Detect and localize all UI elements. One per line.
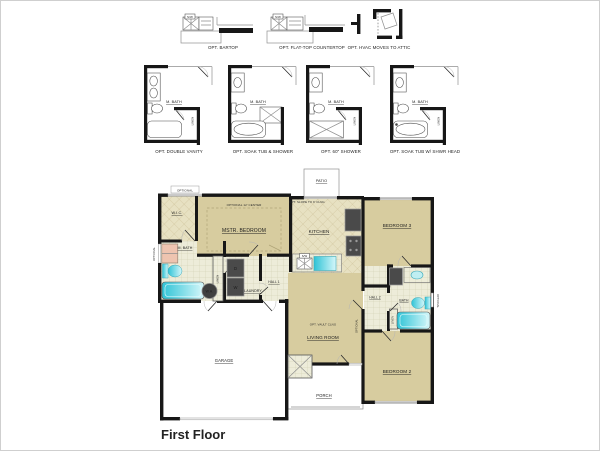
linen1-label: LINEN bbox=[216, 275, 220, 284]
master-bedroom-label: MSTR. BEDROOM bbox=[222, 228, 266, 234]
garage-label: GARAGE bbox=[215, 358, 234, 363]
wic-label: W.I.C. bbox=[172, 211, 183, 215]
floorplan-sheet: S/W OPT. BARTOP S/W OPT. FLAT-TOP COUNTE… bbox=[0, 0, 600, 451]
optional-living-label: OPTIONAL bbox=[355, 319, 359, 333]
room-bedroom3 bbox=[364, 200, 432, 266]
optional-right-label: OPTIONAL bbox=[436, 294, 440, 308]
main-floorplan: LINEN LINEN bbox=[152, 169, 440, 421]
refrigerator-icon bbox=[345, 209, 361, 231]
hvac-unit-icon bbox=[390, 268, 403, 285]
d3-room-label: M. BATH bbox=[328, 100, 344, 104]
room-bedroom2 bbox=[364, 331, 432, 402]
room-living bbox=[288, 273, 363, 364]
option-bartop-label: OPT. BARTOP bbox=[208, 45, 238, 50]
d2-room-label: M. BATH bbox=[250, 100, 266, 104]
master-note-label: OPTIONAL 12' CENTER bbox=[227, 203, 263, 207]
corner-fireplace bbox=[288, 355, 312, 378]
d3-closet-label: LINEN bbox=[353, 117, 357, 126]
washer-label: W bbox=[233, 285, 237, 290]
sheet-title: First Floor bbox=[161, 427, 225, 442]
option-bartop: S/W OPT. BARTOP bbox=[181, 14, 253, 50]
option-soak-tub-shwr-head-label: OPT. SOAK TUB W/ SHWR HEAD bbox=[390, 149, 460, 154]
bedroom3-label: BEDROOM 3 bbox=[383, 223, 412, 228]
d1-closet-label: LINEN bbox=[191, 117, 195, 126]
linen2-label: LINEN bbox=[391, 316, 395, 324]
patio-label: PATIO bbox=[316, 179, 327, 183]
floorplan-drawing: S/W OPT. BARTOP S/W OPT. FLAT-TOP COUNTE… bbox=[1, 1, 600, 451]
option-soak-tub-shwr-head: M. BATH LINEN OPT. SOAK TUB W/ SHWR HEAD bbox=[390, 65, 460, 154]
kitchen-note-label: OPT. SLOPE TO 9' CLNG bbox=[289, 200, 325, 204]
option-soak-tub-shower-label: OPT. SOAK TUB & SHOWER bbox=[233, 149, 293, 154]
mbath-label: M. BATH bbox=[177, 246, 192, 250]
room-wic bbox=[160, 196, 198, 241]
optional-left-label: OPTIONAL bbox=[152, 247, 156, 261]
hall2-label: HALL 2 bbox=[369, 296, 381, 300]
tub-mbath-icon bbox=[162, 282, 204, 299]
dryer-label: D bbox=[234, 266, 237, 271]
flattop-counter bbox=[309, 27, 343, 32]
kitchen-sink-label: S/W bbox=[302, 254, 308, 258]
living-note-label: OPT. VAULT CLNG bbox=[310, 323, 337, 327]
bartop-sink-label: S/W bbox=[187, 15, 193, 19]
toilet-mbath-icon bbox=[163, 264, 183, 278]
water-heater-icon: W.H. bbox=[202, 284, 217, 299]
porch-label: PORCH bbox=[316, 393, 332, 398]
optional-window-tag: OPTIONAL bbox=[171, 186, 199, 193]
option-60-shower: M. BATH LINEN OPT. 60" SHOWER bbox=[306, 65, 374, 154]
room-patio bbox=[304, 169, 339, 199]
option-flattop-label: OPT. FLAT-TOP COUNTERTOP bbox=[279, 45, 345, 50]
range-icon bbox=[346, 236, 361, 256]
option-soak-tub-shower: M. BATH OPT. SOAK TUB & SHOWER bbox=[228, 65, 296, 154]
toilet-bath2-icon bbox=[412, 297, 431, 309]
bedroom2-label: BEDROOM 2 bbox=[383, 369, 412, 374]
option-60-shower-label: OPT. 60" SHOWER bbox=[321, 149, 361, 154]
bath2-vanity bbox=[404, 268, 430, 283]
kitchen-counter: S/W bbox=[293, 254, 342, 273]
hall1-label: HALL 1 bbox=[268, 280, 280, 284]
d1-room-label: M. BATH bbox=[166, 100, 182, 104]
d4-closet-label: LINEN bbox=[437, 117, 441, 126]
option-double-vanity: M. BATH LINEN OPT. DOUBLE VANITY bbox=[144, 65, 212, 154]
flattop-sink-label: S/W bbox=[275, 15, 281, 19]
option-hvac-label: OPT. HVAC MOVES TO ATTIC bbox=[348, 45, 411, 50]
laundry-label: LAUNDRY bbox=[244, 289, 262, 293]
dishwasher-icon bbox=[314, 257, 336, 271]
water-heater-label: W.H. bbox=[206, 290, 214, 294]
bartop-counter bbox=[219, 28, 253, 33]
living-room-label: LIVING ROOM bbox=[307, 335, 339, 340]
option-hvac-attic: OPT. HVAC MOVES TO ATTIC bbox=[348, 9, 411, 50]
optional-top-label: OPTIONAL bbox=[177, 188, 193, 192]
washer-icon: W bbox=[227, 278, 244, 296]
option-double-vanity-label: OPT. DOUBLE VANITY bbox=[155, 149, 203, 154]
dryer-icon: D bbox=[227, 259, 244, 277]
shower-head-icon bbox=[395, 123, 398, 126]
d4-room-label: M. BATH bbox=[412, 100, 428, 104]
tub-bath2-icon bbox=[397, 312, 430, 329]
option-flat-top-countertop: S/W OPT. FLAT-TOP COUNTERTOP bbox=[267, 14, 345, 50]
bath2-label: BATH bbox=[399, 299, 409, 303]
kitchen-label: KITCHEN bbox=[309, 229, 330, 234]
room-hall2 bbox=[364, 286, 389, 331]
